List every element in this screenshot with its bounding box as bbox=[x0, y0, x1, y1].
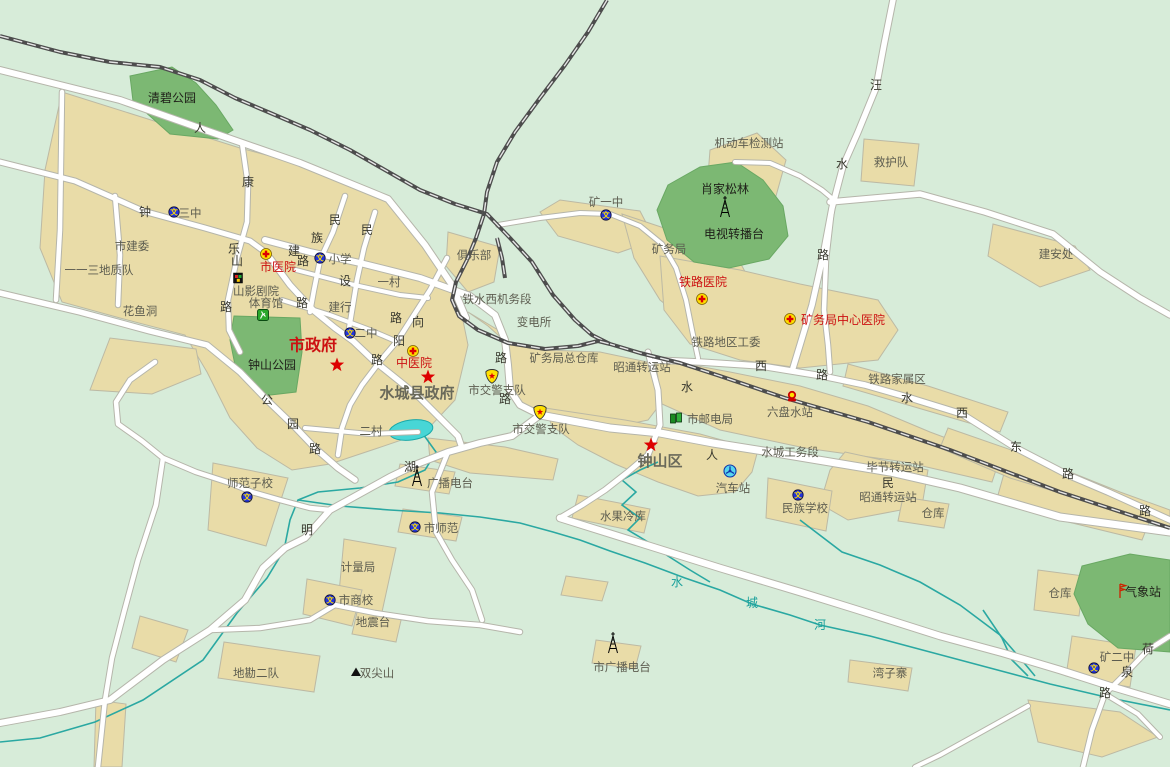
river-label: 河 bbox=[814, 618, 826, 632]
rail-station-icon[interactable] bbox=[788, 392, 796, 402]
road-label: 人 bbox=[706, 448, 718, 462]
school-icon[interactable]: 文 bbox=[242, 492, 252, 503]
road-label: 人 bbox=[194, 121, 206, 135]
road-label: 山 bbox=[231, 254, 243, 268]
school-icon[interactable]: 文 bbox=[1089, 663, 1099, 674]
svg-text:文: 文 bbox=[316, 253, 324, 263]
place-label: 市广播电台 bbox=[593, 660, 651, 674]
place-label: 民族学校 bbox=[782, 501, 828, 515]
place-label: 一村 bbox=[378, 275, 401, 289]
place-label: 建安处 bbox=[1039, 247, 1074, 261]
cinema-icon[interactable] bbox=[234, 273, 243, 283]
road-label: 阳 bbox=[393, 334, 405, 348]
place-label: 市建委 bbox=[115, 239, 150, 253]
place-label: 市邮电局 bbox=[687, 412, 733, 426]
place-label: 矿务局中心医院 bbox=[801, 312, 885, 327]
road-label: 路 bbox=[816, 367, 828, 382]
place-label: 矿务局总仓库 bbox=[530, 351, 599, 365]
road-label: 路 bbox=[371, 352, 383, 367]
place-label: 矿一中 bbox=[589, 195, 624, 209]
place-label: 矿二中 bbox=[1100, 650, 1135, 664]
road-label: 公 bbox=[261, 393, 273, 407]
place-label: 体育馆 bbox=[249, 296, 284, 310]
road-label: 族 bbox=[311, 231, 323, 245]
school-icon[interactable]: 文 bbox=[315, 253, 325, 264]
road-label: 民 bbox=[882, 476, 894, 490]
road-label: 路 bbox=[390, 310, 402, 325]
place-label: 俱乐部 bbox=[457, 248, 492, 262]
place-label: 钟山公园 bbox=[248, 357, 296, 372]
place-label: 毕节转运站 bbox=[866, 460, 924, 474]
place-label: 双尖山 bbox=[360, 666, 395, 680]
road-label: 向 bbox=[412, 314, 424, 329]
road-label: 路 bbox=[499, 391, 511, 406]
road-label: 路 bbox=[296, 295, 308, 310]
road-label: 荷 bbox=[1142, 642, 1154, 656]
bus-station-icon[interactable] bbox=[724, 465, 736, 477]
road-label: 路 bbox=[1099, 685, 1111, 700]
place-label: 水城工务段 bbox=[761, 445, 819, 459]
road-label: 民 bbox=[329, 213, 341, 227]
road-label: 路 bbox=[1062, 466, 1074, 481]
place-label: 广播电台 bbox=[427, 476, 473, 490]
place-label: 清碧公园 bbox=[148, 91, 196, 105]
place-label: 市医院 bbox=[260, 259, 296, 274]
road-label: 路 bbox=[817, 247, 829, 262]
road-label: 路 bbox=[297, 253, 309, 268]
school-icon[interactable]: 文 bbox=[793, 490, 803, 501]
sports-icon[interactable] bbox=[258, 310, 269, 321]
place-label: 仓库 bbox=[922, 506, 945, 520]
school-icon[interactable]: 文 bbox=[410, 522, 420, 533]
place-label: 水果冷库 bbox=[600, 509, 646, 523]
river-label: 水 bbox=[671, 575, 683, 589]
place-label: 湾子寨 bbox=[873, 666, 908, 680]
road-label: 泉 bbox=[1121, 665, 1133, 679]
place-label: 气象站 bbox=[1125, 584, 1161, 599]
road-label: 东 bbox=[1010, 440, 1022, 454]
road-label: 水 bbox=[681, 380, 693, 394]
place-label: 铁路家属区 bbox=[868, 372, 926, 386]
hospital-icon[interactable] bbox=[785, 314, 796, 325]
road-label: 明 bbox=[301, 523, 313, 537]
place-label: 师范子校 bbox=[227, 476, 273, 490]
city-government-label: 市政府 bbox=[289, 336, 337, 355]
place-label: 铁水西机务段 bbox=[463, 292, 532, 306]
place-label: 市商校 bbox=[339, 593, 374, 607]
svg-text:文: 文 bbox=[602, 210, 610, 220]
svg-text:文: 文 bbox=[346, 328, 354, 338]
hospital-icon[interactable] bbox=[408, 346, 419, 357]
place-label: 一一三地质队 bbox=[65, 263, 134, 277]
place-label: 机动车检测站 bbox=[715, 136, 784, 150]
place-label: 铁路地区工委 bbox=[692, 335, 761, 349]
hospital-icon[interactable] bbox=[697, 294, 708, 305]
district-label: 水城县政府 bbox=[379, 384, 454, 402]
road-label: 设 bbox=[339, 274, 351, 288]
place-label: 地勘二队 bbox=[233, 666, 279, 680]
place-label: 电视转播台 bbox=[704, 226, 764, 241]
place-label: 昭通转运站 bbox=[613, 360, 671, 374]
hospital-icon[interactable] bbox=[261, 249, 272, 260]
road-label: 汪 bbox=[870, 78, 882, 92]
place-label: 市交警支队 bbox=[468, 383, 526, 397]
svg-text:文: 文 bbox=[326, 595, 334, 605]
city-map[interactable]: 文文文文文文文文文清碧公园人康钟三中市建委一一三地质队花鱼洞乐山路市医院建路民族… bbox=[0, 0, 1170, 767]
place-label: 变电所 bbox=[517, 315, 552, 329]
place-label: 肖家松林 bbox=[701, 181, 749, 196]
river-label: 城 bbox=[746, 596, 758, 610]
svg-text:文: 文 bbox=[243, 492, 251, 502]
svg-text:文: 文 bbox=[794, 490, 802, 500]
place-label: 花鱼洞 bbox=[123, 304, 158, 318]
svg-text:文: 文 bbox=[1090, 663, 1098, 673]
place-label: 中医院 bbox=[396, 355, 432, 370]
road-label: 水 bbox=[836, 157, 848, 171]
place-label: 市交警支队 bbox=[512, 422, 570, 436]
road-label: 钟 bbox=[139, 204, 151, 219]
svg-text:文: 文 bbox=[411, 522, 419, 532]
district-label: 钟山区 bbox=[637, 452, 682, 470]
place-label: 仓库 bbox=[1049, 586, 1072, 600]
road-label: 园 bbox=[287, 417, 299, 431]
school-icon[interactable]: 文 bbox=[325, 595, 335, 606]
road-label: 路 bbox=[1139, 503, 1151, 518]
place-label: 昭通转运站 bbox=[859, 490, 917, 504]
place-label: 二中 bbox=[355, 326, 378, 340]
road-label: 湖 bbox=[404, 459, 416, 474]
road-label: 水 bbox=[901, 391, 913, 405]
place-label: 市师范 bbox=[424, 521, 459, 535]
place-label: 汽车站 bbox=[716, 481, 751, 495]
place-label: 建行 bbox=[329, 300, 352, 314]
place-label: 计量局 bbox=[341, 560, 376, 574]
road-label: 西 bbox=[755, 359, 767, 373]
road-label: 路 bbox=[495, 350, 507, 365]
school-icon[interactable]: 文 bbox=[601, 210, 611, 221]
road-label: 路 bbox=[309, 441, 321, 456]
place-label: 六盘水站 bbox=[767, 405, 813, 419]
map-canvas[interactable]: 文文文文文文文文文清碧公园人康钟三中市建委一一三地质队花鱼洞乐山路市医院建路民族… bbox=[0, 0, 1170, 767]
place-label: 二村 bbox=[360, 424, 383, 438]
place-label: 矿务局 bbox=[652, 242, 687, 256]
place-label: 铁路医院 bbox=[679, 274, 727, 289]
place-label: 地震台 bbox=[356, 615, 391, 629]
place-label: 三中 bbox=[179, 206, 202, 220]
road-label: 西 bbox=[956, 406, 968, 420]
place-label: 救护队 bbox=[874, 155, 909, 169]
place-label: 小学 bbox=[329, 252, 352, 266]
road-label: 路 bbox=[220, 299, 232, 314]
road-label: 民 bbox=[361, 223, 373, 237]
road-label: 康 bbox=[242, 174, 254, 189]
svg-text:文: 文 bbox=[170, 207, 178, 217]
